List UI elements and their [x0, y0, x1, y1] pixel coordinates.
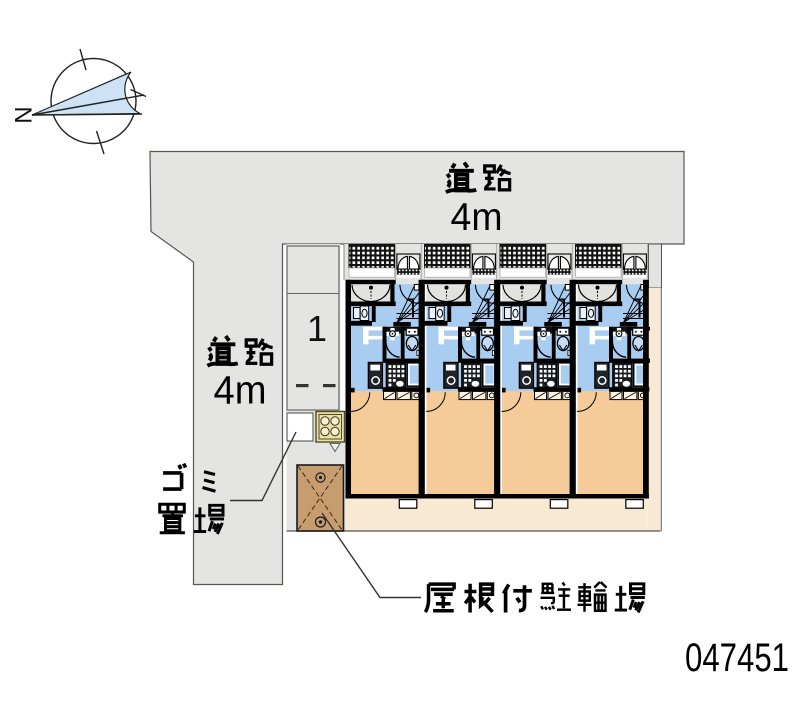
svg-text:4m: 4m [214, 369, 267, 413]
svg-text:N: N [9, 106, 36, 123]
svg-text:047451: 047451 [685, 636, 789, 680]
svg-text:1: 1 [307, 308, 327, 349]
svg-text:4m: 4m [451, 196, 503, 239]
